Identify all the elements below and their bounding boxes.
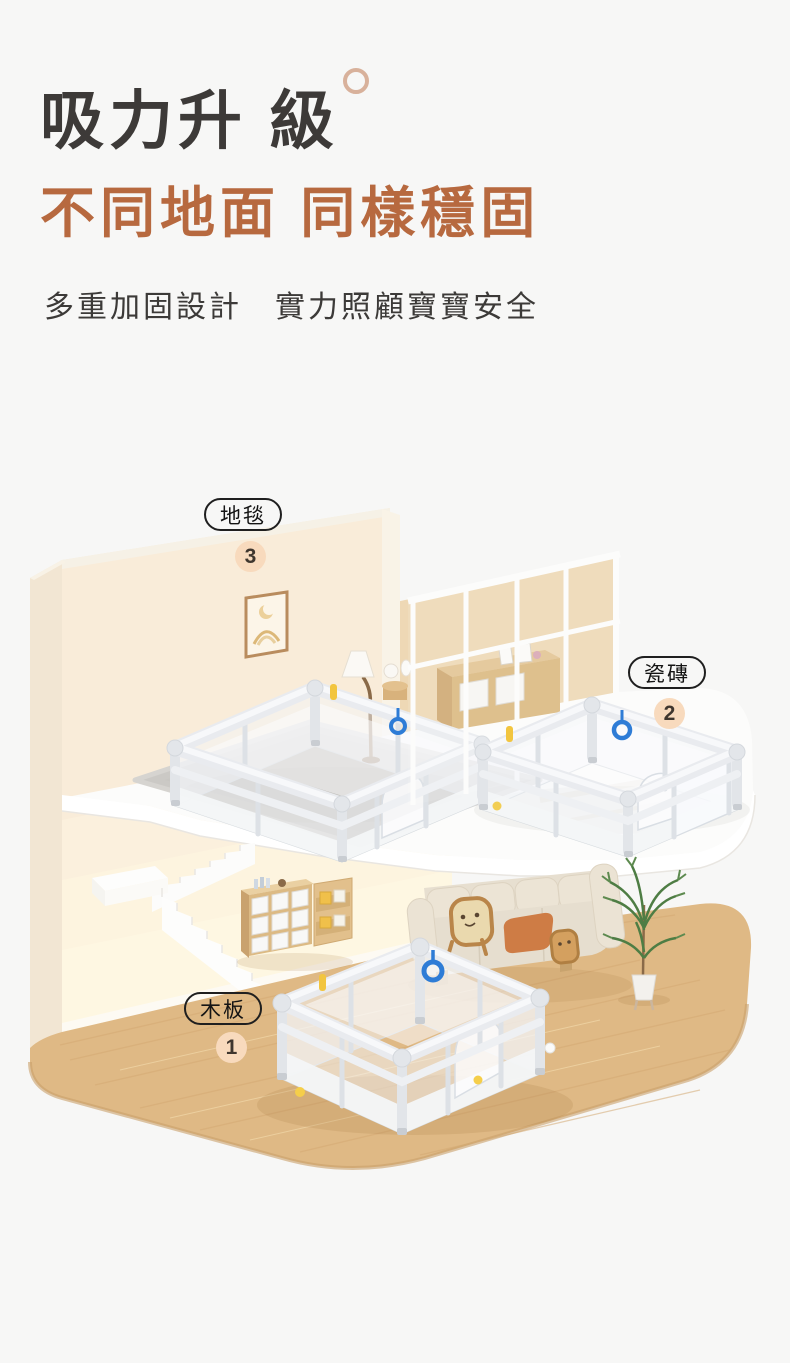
yellow-clip: [330, 684, 337, 700]
label-wood-text: 木板: [200, 994, 246, 1024]
brown-plush: [550, 929, 579, 964]
yellow-clip: [319, 974, 326, 991]
label-tile-text: 瓷磚: [644, 658, 690, 688]
ball-lamp-icon: [384, 664, 398, 678]
play-ball: [295, 1087, 305, 1097]
plant-pot: [632, 975, 656, 1000]
kids-shelf: [237, 877, 353, 971]
badge-carpet-number: 3: [235, 541, 266, 572]
label-carpet: 地毯: [204, 498, 282, 531]
label-wood: 木板: [184, 992, 262, 1025]
orange-pillow: [504, 913, 553, 953]
book: [320, 892, 331, 904]
yellow-clip: [506, 726, 513, 742]
play-ball: [474, 1076, 483, 1085]
storage-bins: [252, 889, 308, 953]
book: [334, 915, 345, 926]
book: [320, 917, 331, 928]
label-carpet-text: 地毯: [220, 500, 266, 530]
book-rack: [314, 878, 352, 946]
left-wall: [30, 560, 62, 1048]
badge-tile-number: 2: [654, 698, 685, 729]
label-tile: 瓷磚: [628, 656, 706, 689]
wall-art: [246, 592, 287, 657]
book: [334, 890, 345, 902]
play-ball: [493, 802, 502, 811]
play-ball: [545, 1043, 555, 1053]
page: 吸力升 級 不同地面 同樣穩固 多重加固設計 實力照顧寶寶安全: [0, 0, 790, 1363]
shadow: [237, 953, 353, 971]
badge-wood-number: 1: [216, 1032, 247, 1063]
